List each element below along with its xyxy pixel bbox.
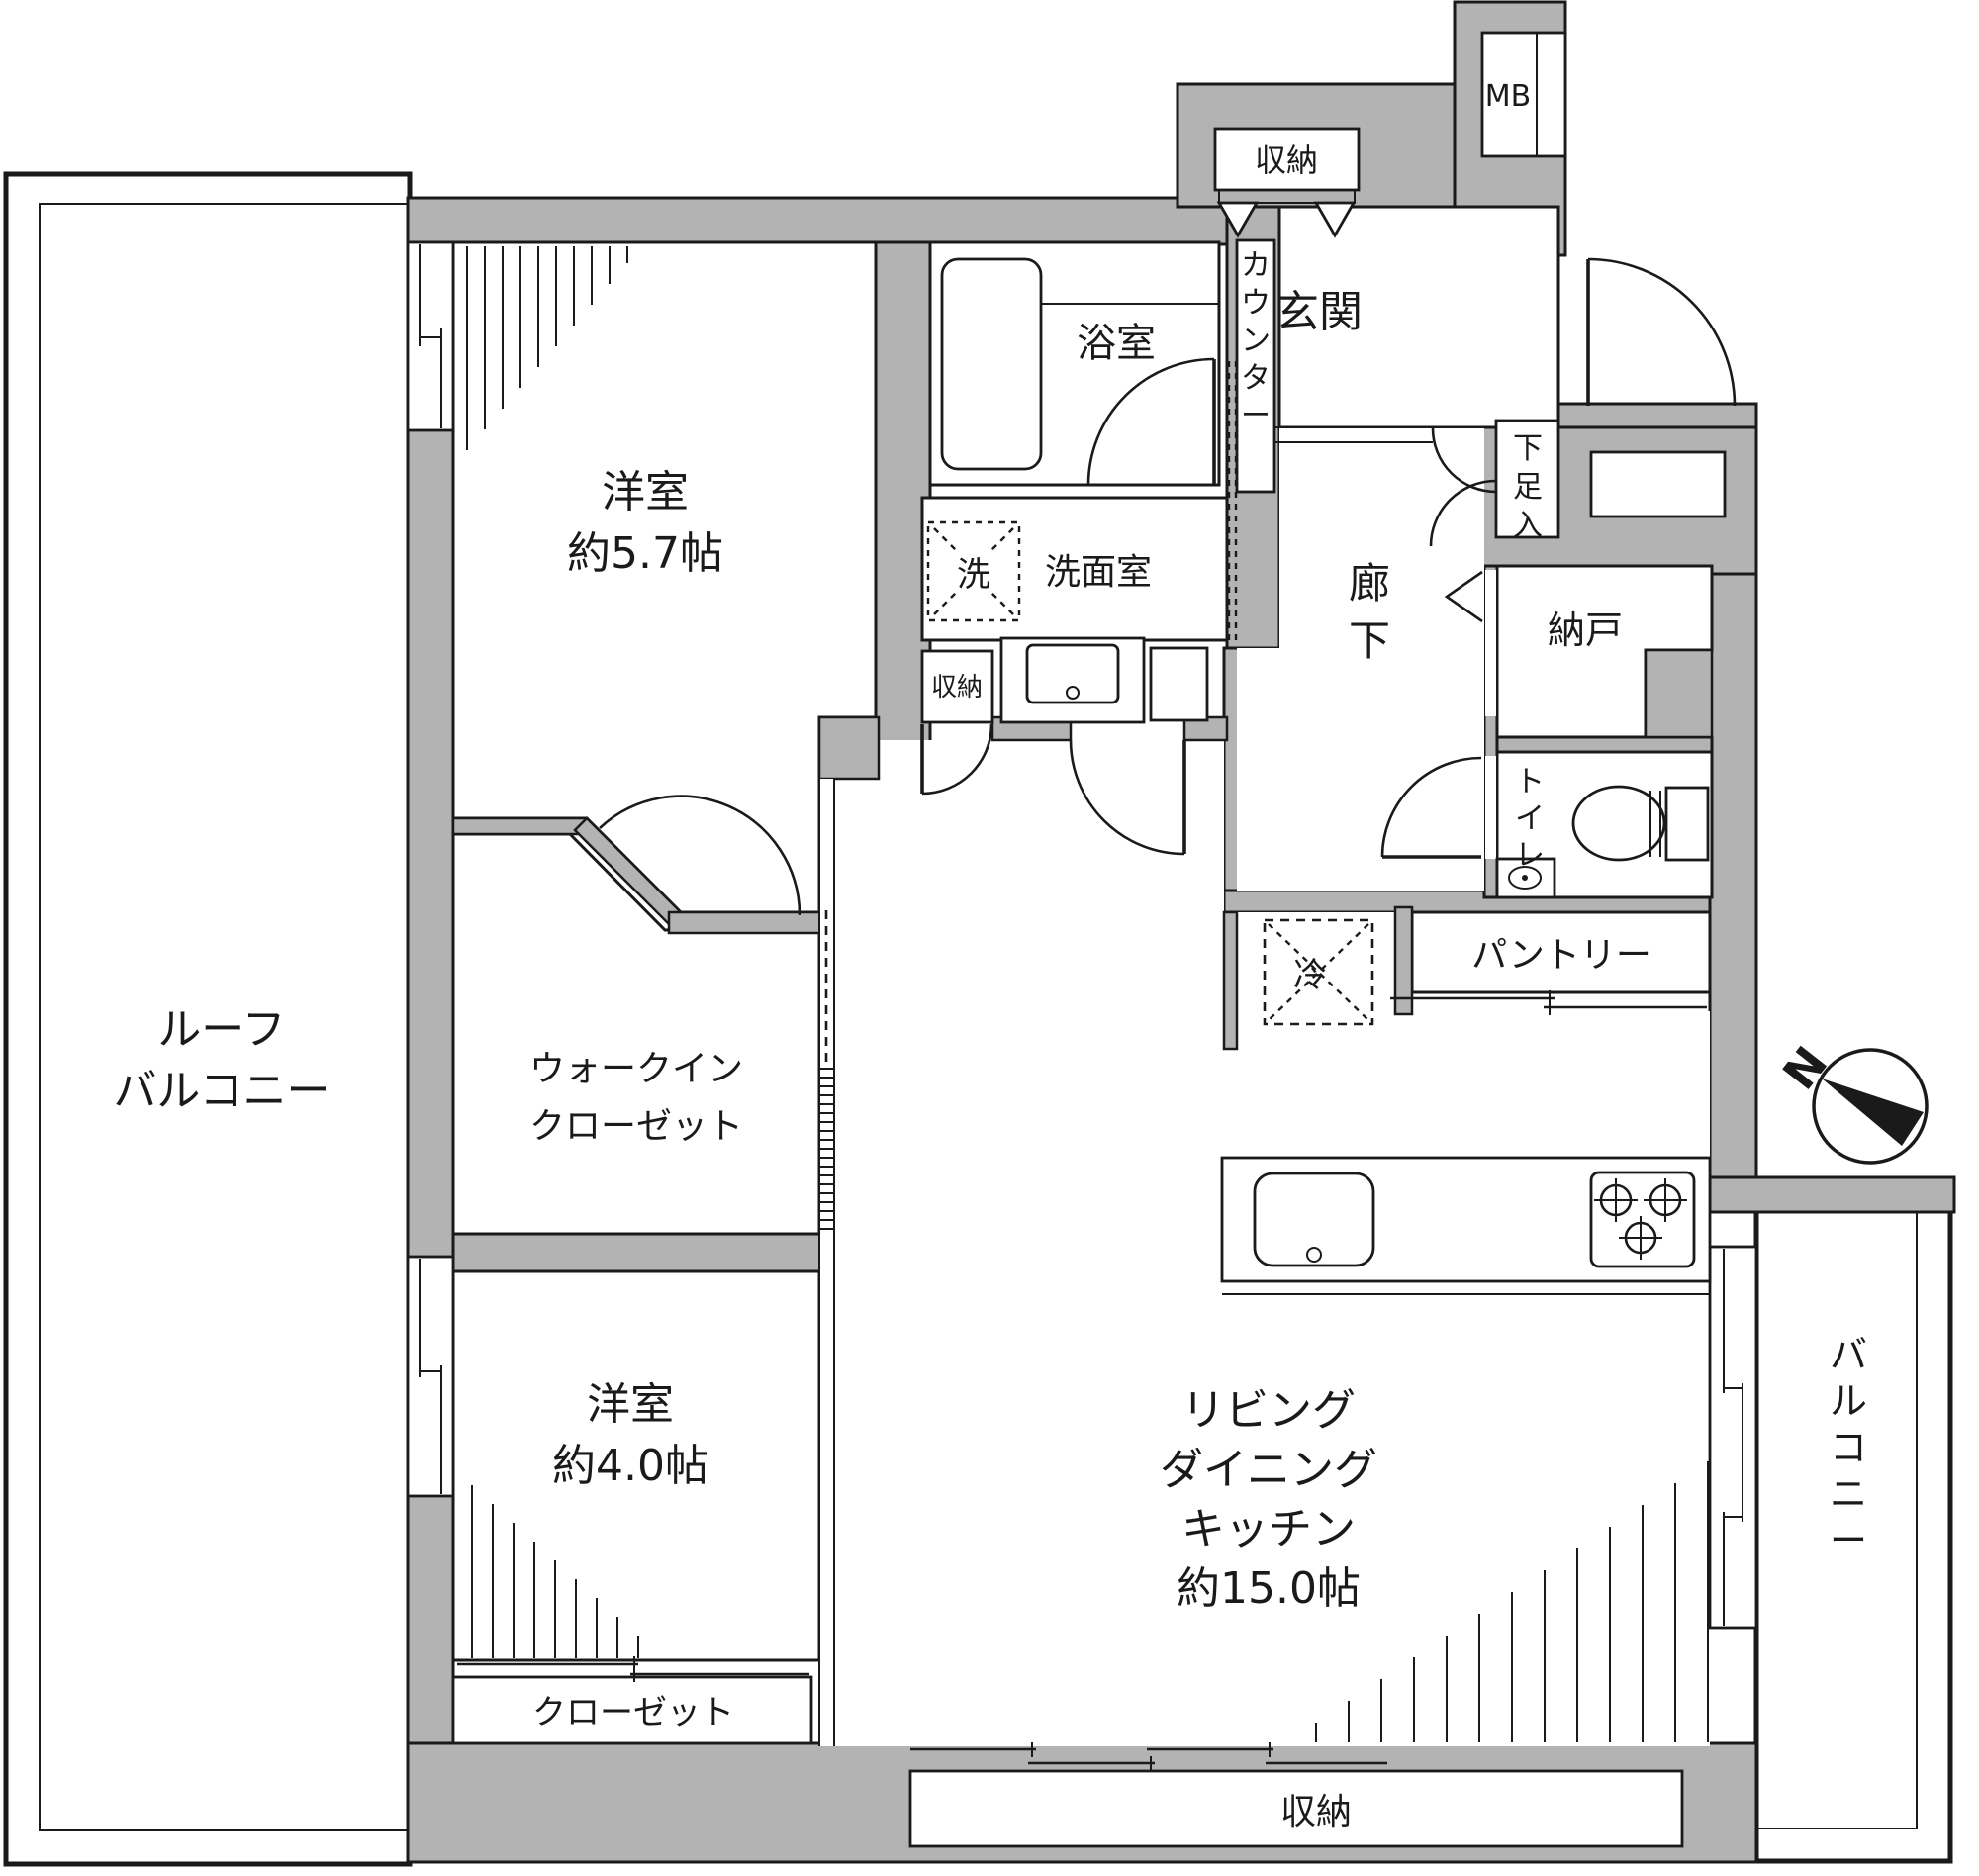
floorplan-page: N MB 収納 玄関 浴室 カウンター 洗 洗面室 収納 廊下 下足入 納戸 ト…: [0, 0, 1979, 1876]
floorplan-drawing: N MB 収納 玄関 浴室 カウンター 洗 洗面室 収納 廊下 下足入 納戸 ト…: [0, 0, 1979, 1876]
label-shoe-box: 下足入: [1513, 431, 1543, 543]
window-bedroom2-icon: [408, 1257, 453, 1496]
label-bedroom2-name: 洋室: [587, 1379, 674, 1430]
label-ldk-line3: キッチン: [1181, 1504, 1356, 1554]
label-bathroom: 浴室: [1077, 321, 1156, 366]
label-pantry: パントリー: [1471, 935, 1651, 976]
label-fridge: 冷: [1293, 956, 1327, 995]
partition-strip: [819, 779, 834, 1746]
label-entrance: 玄関: [1275, 287, 1363, 337]
label-toilet: トイレ: [1515, 765, 1545, 873]
label-entrance-storage: 収納: [1255, 141, 1318, 179]
label-mb: MB: [1485, 79, 1531, 114]
label-bedroom2-size: 約4.0帖: [552, 1441, 708, 1491]
compass-icon: N: [1772, 1037, 1927, 1163]
label-roof-line2: バルコニー: [113, 1066, 330, 1116]
label-balcony: バルコニー: [1830, 1333, 1867, 1562]
niche-box: [1591, 452, 1725, 516]
label-bedroom1-name: 洋室: [602, 467, 689, 517]
label-bottom-storage: 収納: [1280, 1792, 1352, 1832]
kitchen-sink-icon: [1255, 1173, 1373, 1266]
window-bedroom1-icon: [408, 242, 453, 430]
entrance-door-icon: [1588, 259, 1735, 406]
label-roof-line1: ルーフ: [157, 1004, 285, 1055]
label-ldk-line2: ダイニング: [1160, 1445, 1377, 1495]
label-bedroom1-size: 約5.7帖: [567, 528, 723, 579]
window-ldk-balcony-icon: [1710, 1247, 1756, 1628]
label-small-storage: 収納: [931, 673, 983, 703]
label-closet: クローゼット: [532, 1693, 734, 1733]
washbasin-icon: [1001, 638, 1207, 722]
label-ldk-line1: リビング: [1181, 1385, 1356, 1436]
label-ldk-size: 約15.0帖: [1177, 1563, 1361, 1614]
label-washer: 洗: [957, 555, 990, 595]
label-counter: カウンター: [1241, 248, 1271, 433]
kitchen-counter: [1222, 1158, 1710, 1294]
label-wic-line2: クローゼット: [529, 1106, 743, 1147]
label-storeroom: 納戸: [1548, 609, 1623, 652]
label-washroom: 洗面室: [1045, 552, 1152, 593]
label-wic-line1: ウォークイン: [529, 1049, 743, 1089]
stove-icon: [1591, 1172, 1694, 1266]
